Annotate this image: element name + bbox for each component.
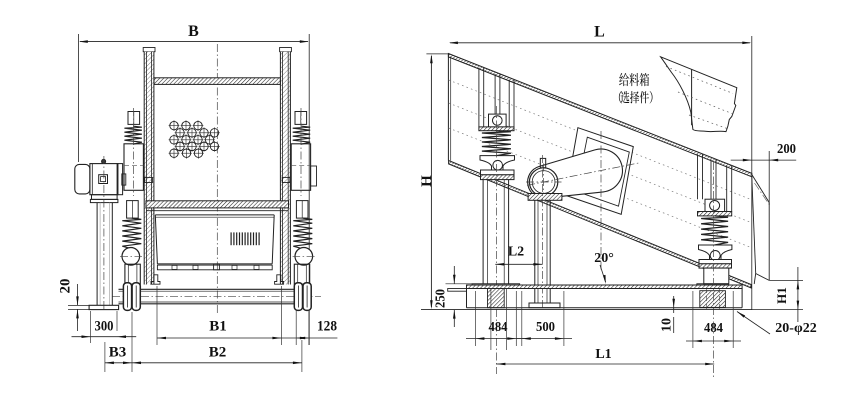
- svg-text:250: 250: [434, 289, 449, 308]
- svg-text:B: B: [188, 23, 199, 40]
- svg-text:128: 128: [317, 319, 337, 335]
- svg-text:20: 20: [58, 279, 74, 294]
- svg-text:B3: B3: [109, 345, 127, 361]
- svg-text:H: H: [419, 175, 435, 187]
- svg-text:10: 10: [660, 318, 675, 332]
- svg-text:484: 484: [489, 320, 508, 335]
- svg-text:20°: 20°: [594, 251, 614, 266]
- svg-text:484: 484: [704, 321, 723, 336]
- svg-text:300: 300: [95, 319, 114, 335]
- svg-text:20-φ22: 20-φ22: [775, 321, 816, 336]
- svg-text:L: L: [594, 24, 605, 41]
- svg-text:H1: H1: [774, 287, 789, 304]
- svg-text:B1: B1: [209, 319, 227, 335]
- svg-text:L2: L2: [508, 245, 524, 260]
- svg-text:200: 200: [777, 142, 796, 157]
- svg-text:L1: L1: [595, 347, 611, 362]
- svg-text:B2: B2: [209, 345, 227, 361]
- svg-text:500: 500: [536, 320, 555, 335]
